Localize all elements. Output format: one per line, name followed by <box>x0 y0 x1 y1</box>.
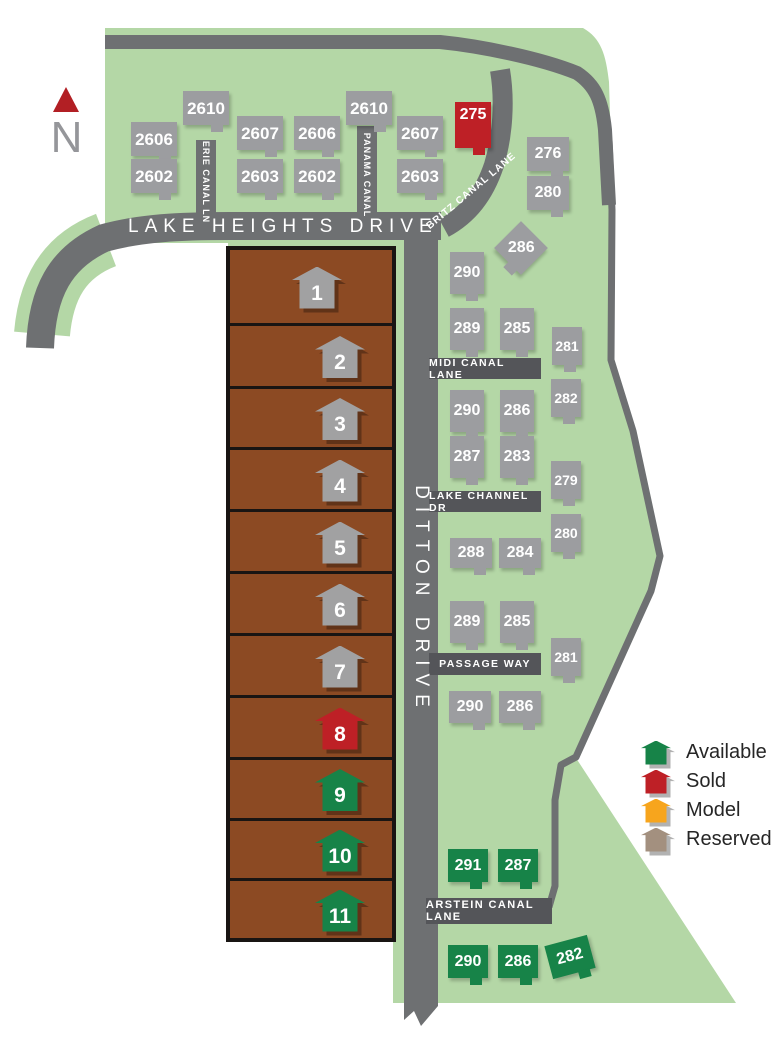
home-marker-label: 283 <box>504 449 531 465</box>
home-marker-label: 279 <box>554 473 577 487</box>
home-marker-2607[interactable]: 2607 <box>237 116 283 150</box>
home-marker-275[interactable]: 275 <box>455 102 491 148</box>
lot-number: 2 <box>315 351 365 375</box>
house-icon: 8 <box>315 708 365 750</box>
home-marker-281[interactable]: 281 <box>551 638 581 676</box>
home-marker-280[interactable]: 280 <box>527 176 569 210</box>
home-marker-2606[interactable]: 2606 <box>131 122 177 156</box>
home-marker-279[interactable]: 279 <box>551 461 581 499</box>
home-marker-label: 282 <box>555 946 585 968</box>
home-marker-label: 2607 <box>241 125 279 142</box>
home-marker-2602[interactable]: 2602 <box>294 159 340 193</box>
legend-item-reserved: Reserved <box>641 827 772 852</box>
street-label-panama: PANAMA CANAL <box>362 130 372 220</box>
lot-number: 10 <box>315 845 365 869</box>
sold-house-icon <box>641 770 671 794</box>
lot-5[interactable] <box>230 512 392 571</box>
legend-item-sold: Sold <box>641 769 772 794</box>
house-icon: 9 <box>315 769 365 811</box>
available-house-icon <box>641 741 671 765</box>
home-marker-283[interactable]: 283 <box>500 436 534 478</box>
house-icon: 6 <box>315 584 365 626</box>
north-label: N <box>44 113 89 163</box>
home-marker-label: 287 <box>505 858 532 874</box>
home-marker-2610[interactable]: 2610 <box>346 91 392 125</box>
legend-label: Sold <box>686 770 726 793</box>
house-icon: 3 <box>315 398 365 440</box>
home-marker-label: 290 <box>457 699 484 715</box>
north-arrow-icon <box>53 87 79 112</box>
home-marker-2603[interactable]: 2603 <box>237 159 283 193</box>
home-marker-290[interactable]: 290 <box>450 390 484 432</box>
lot-number: 6 <box>315 599 365 623</box>
home-marker-286[interactable]: 286 <box>498 945 538 978</box>
home-marker-291[interactable]: 291 <box>448 849 488 882</box>
home-marker-label: 2602 <box>135 168 173 185</box>
house-icon: 10 <box>315 830 365 872</box>
house-icon: 5 <box>315 522 365 564</box>
home-marker-label: 287 <box>454 449 481 465</box>
home-marker-label: 286 <box>507 699 534 715</box>
home-marker-label: 2606 <box>135 131 173 148</box>
home-marker-label: 282 <box>554 391 577 405</box>
home-marker-label: 289 <box>454 321 481 337</box>
home-marker-2602[interactable]: 2602 <box>131 159 177 193</box>
lot-number: 5 <box>315 537 365 561</box>
lot-number: 9 <box>315 784 365 808</box>
home-marker-286[interactable]: 286 <box>500 390 534 432</box>
home-marker-287[interactable]: 287 <box>498 849 538 882</box>
home-marker-label: 275 <box>460 107 487 123</box>
home-marker-label: 289 <box>454 614 481 630</box>
home-marker-290[interactable]: 290 <box>448 945 488 978</box>
lot-2[interactable] <box>230 326 392 386</box>
street-label-midi: MIDI CANAL LANE <box>429 358 541 379</box>
house-icon: 11 <box>315 890 365 932</box>
lot-6[interactable] <box>230 574 392 633</box>
lot-number: 7 <box>315 661 365 685</box>
home-marker-label: 281 <box>555 339 578 353</box>
home-marker-290[interactable]: 290 <box>449 691 491 723</box>
home-marker-label: 2610 <box>350 100 388 117</box>
street-label-ditton: DITTON DRIVE <box>410 400 432 800</box>
home-marker-289[interactable]: 289 <box>450 308 484 350</box>
home-marker-287[interactable]: 287 <box>450 436 484 478</box>
lot-3[interactable] <box>230 389 392 447</box>
legend-item-model: Model <box>641 798 772 823</box>
street-label-arstein: ARSTEIN CANAL LANE <box>426 898 552 924</box>
home-marker-label: 276 <box>535 146 562 162</box>
home-marker-label: 2606 <box>298 125 336 142</box>
home-marker-285[interactable]: 285 <box>500 601 534 643</box>
lot-number: 1 <box>292 282 342 306</box>
home-marker-label: 281 <box>554 650 577 664</box>
home-marker-label: 284 <box>507 545 534 561</box>
house-icon: 4 <box>315 460 365 502</box>
home-marker-label: 285 <box>504 321 531 337</box>
home-marker-289[interactable]: 289 <box>450 601 484 643</box>
lot-10[interactable] <box>230 821 392 878</box>
home-marker-label: 2602 <box>298 168 336 185</box>
home-marker-label: 286 <box>505 954 532 970</box>
model-house-icon <box>641 799 671 823</box>
lot-number: 4 <box>315 475 365 499</box>
home-marker-label: 2607 <box>401 125 439 142</box>
home-marker-label: 286 <box>504 403 531 419</box>
lot-7[interactable] <box>230 636 392 695</box>
home-marker-label: 280 <box>535 185 562 201</box>
home-marker-label: 285 <box>504 614 531 630</box>
home-marker-label: 2603 <box>401 168 439 185</box>
street-label-passage: PASSAGE WAY <box>429 653 541 675</box>
lot-number: 11 <box>315 905 365 929</box>
home-marker-281[interactable]: 281 <box>552 327 582 365</box>
home-marker-label: 2603 <box>241 168 279 185</box>
house-icon: 1 <box>292 267 342 309</box>
home-marker-280[interactable]: 280 <box>551 514 581 552</box>
home-marker-284[interactable]: 284 <box>499 538 541 568</box>
legend-label: Available <box>686 741 767 764</box>
home-marker-276[interactable]: 276 <box>527 137 569 171</box>
home-marker-285[interactable]: 285 <box>500 308 534 350</box>
street-label-erie: ERIE CANAL LN <box>201 137 211 227</box>
lot-11[interactable] <box>230 881 392 938</box>
home-marker-label: 288 <box>458 545 485 561</box>
lot-9[interactable] <box>230 760 392 818</box>
house-icon: 7 <box>315 646 365 688</box>
legend: AvailableSoldModelReserved <box>641 740 772 852</box>
home-marker-282[interactable]: 282 <box>551 379 581 417</box>
street-label-lake-channel: LAKE CHANNEL DR <box>429 491 541 512</box>
home-marker-2607[interactable]: 2607 <box>397 116 443 150</box>
home-marker-290[interactable]: 290 <box>450 252 484 294</box>
home-marker-2606[interactable]: 2606 <box>294 116 340 150</box>
lot-8[interactable] <box>230 698 392 757</box>
lot-number: 8 <box>315 723 365 747</box>
legend-label: Model <box>686 799 740 822</box>
home-marker-286[interactable]: 286 <box>499 691 541 723</box>
home-marker-label: 280 <box>554 526 577 540</box>
legend-label: Reserved <box>686 828 772 851</box>
house-icon: 2 <box>315 336 365 378</box>
home-marker-label: 290 <box>455 954 482 970</box>
home-marker-label: 290 <box>454 265 481 281</box>
lot-number: 3 <box>315 413 365 437</box>
home-marker-label: 286 <box>508 240 535 256</box>
home-marker-2610[interactable]: 2610 <box>183 91 229 125</box>
site-map: N LAKE HEIGHTS DRIVE DITTON DRIVE ERIE C… <box>0 0 781 1042</box>
street-label-lake-heights: LAKE HEIGHTS DRIVE <box>128 216 402 238</box>
home-marker-label: 290 <box>454 403 481 419</box>
reserved-house-icon <box>641 828 671 852</box>
home-marker-288[interactable]: 288 <box>450 538 492 568</box>
legend-item-available: Available <box>641 740 772 765</box>
home-marker-label: 2610 <box>187 100 225 117</box>
home-marker-label: 291 <box>455 858 482 874</box>
lot-4[interactable] <box>230 450 392 509</box>
home-marker-2603[interactable]: 2603 <box>397 159 443 193</box>
